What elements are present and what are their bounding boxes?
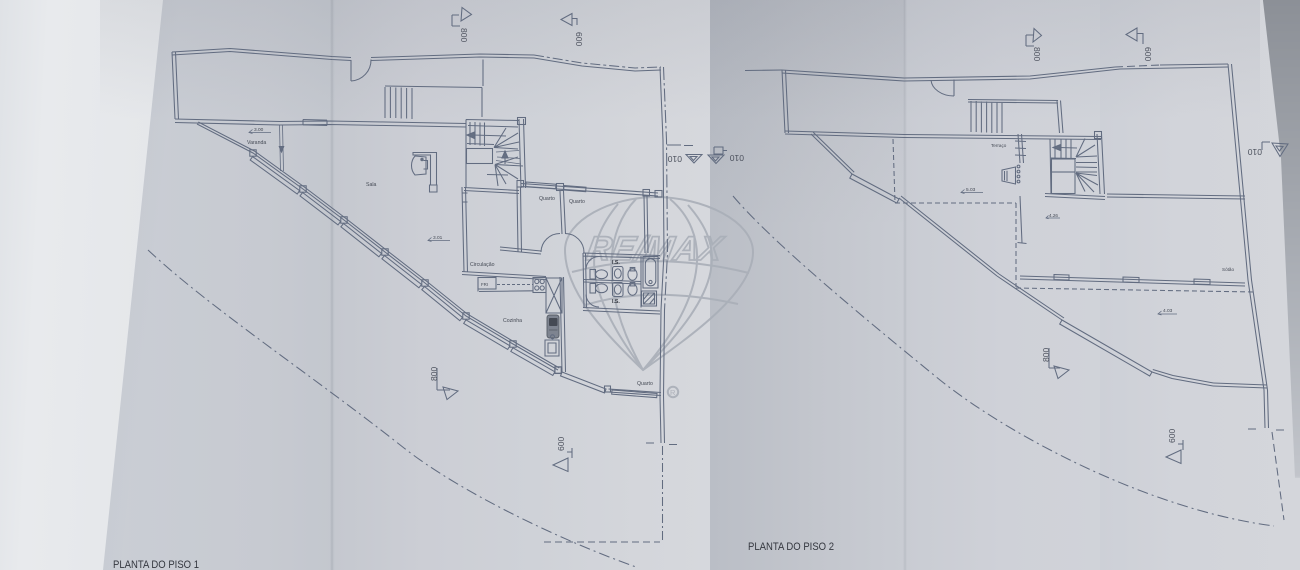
svg-text:800: 800 bbox=[459, 28, 469, 42]
svg-text:600: 600 bbox=[556, 437, 566, 451]
svg-text:5.03: 5.03 bbox=[966, 187, 976, 193]
svg-text:3.00: 3.00 bbox=[254, 127, 264, 133]
svg-text:PLANTA DO PISO 1: PLANTA DO PISO 1 bbox=[113, 559, 199, 570]
svg-text:Terraço: Terraço bbox=[991, 143, 1007, 148]
svg-text:Cozinha: Cozinha bbox=[503, 318, 522, 324]
svg-text:010: 010 bbox=[668, 154, 682, 164]
svg-text:600: 600 bbox=[1143, 47, 1153, 61]
svg-text:Quarto: Quarto bbox=[637, 381, 653, 387]
svg-text:Sala: Sala bbox=[366, 182, 376, 188]
svg-text:R: R bbox=[670, 388, 676, 397]
svg-text:800: 800 bbox=[429, 367, 439, 381]
svg-text:PLANTA DO PISO 2: PLANTA DO PISO 2 bbox=[748, 541, 834, 553]
svg-text:Quarto: Quarto bbox=[539, 196, 555, 202]
svg-text:FRI: FRI bbox=[481, 282, 488, 287]
svg-text:4.03: 4.03 bbox=[1163, 308, 1173, 314]
svg-text:600: 600 bbox=[574, 32, 584, 46]
svg-text:Varanda: Varanda bbox=[247, 140, 266, 146]
svg-text:Circulação: Circulação bbox=[470, 262, 495, 268]
svg-text:I.S.: I.S. bbox=[612, 260, 620, 266]
svg-text:3.01: 3.01 bbox=[433, 235, 443, 241]
svg-text:800: 800 bbox=[1041, 348, 1051, 362]
svg-text:010: 010 bbox=[1248, 147, 1262, 157]
svg-text:Quarto: Quarto bbox=[569, 199, 585, 205]
svg-text:4.26: 4.26 bbox=[1049, 213, 1058, 218]
svg-text:Sótão: Sótão bbox=[1222, 267, 1234, 272]
svg-text:I.S.: I.S. bbox=[612, 299, 620, 305]
svg-text:600: 600 bbox=[1167, 429, 1177, 443]
svg-text:010: 010 bbox=[730, 153, 744, 163]
svg-text:800: 800 bbox=[1032, 47, 1042, 61]
